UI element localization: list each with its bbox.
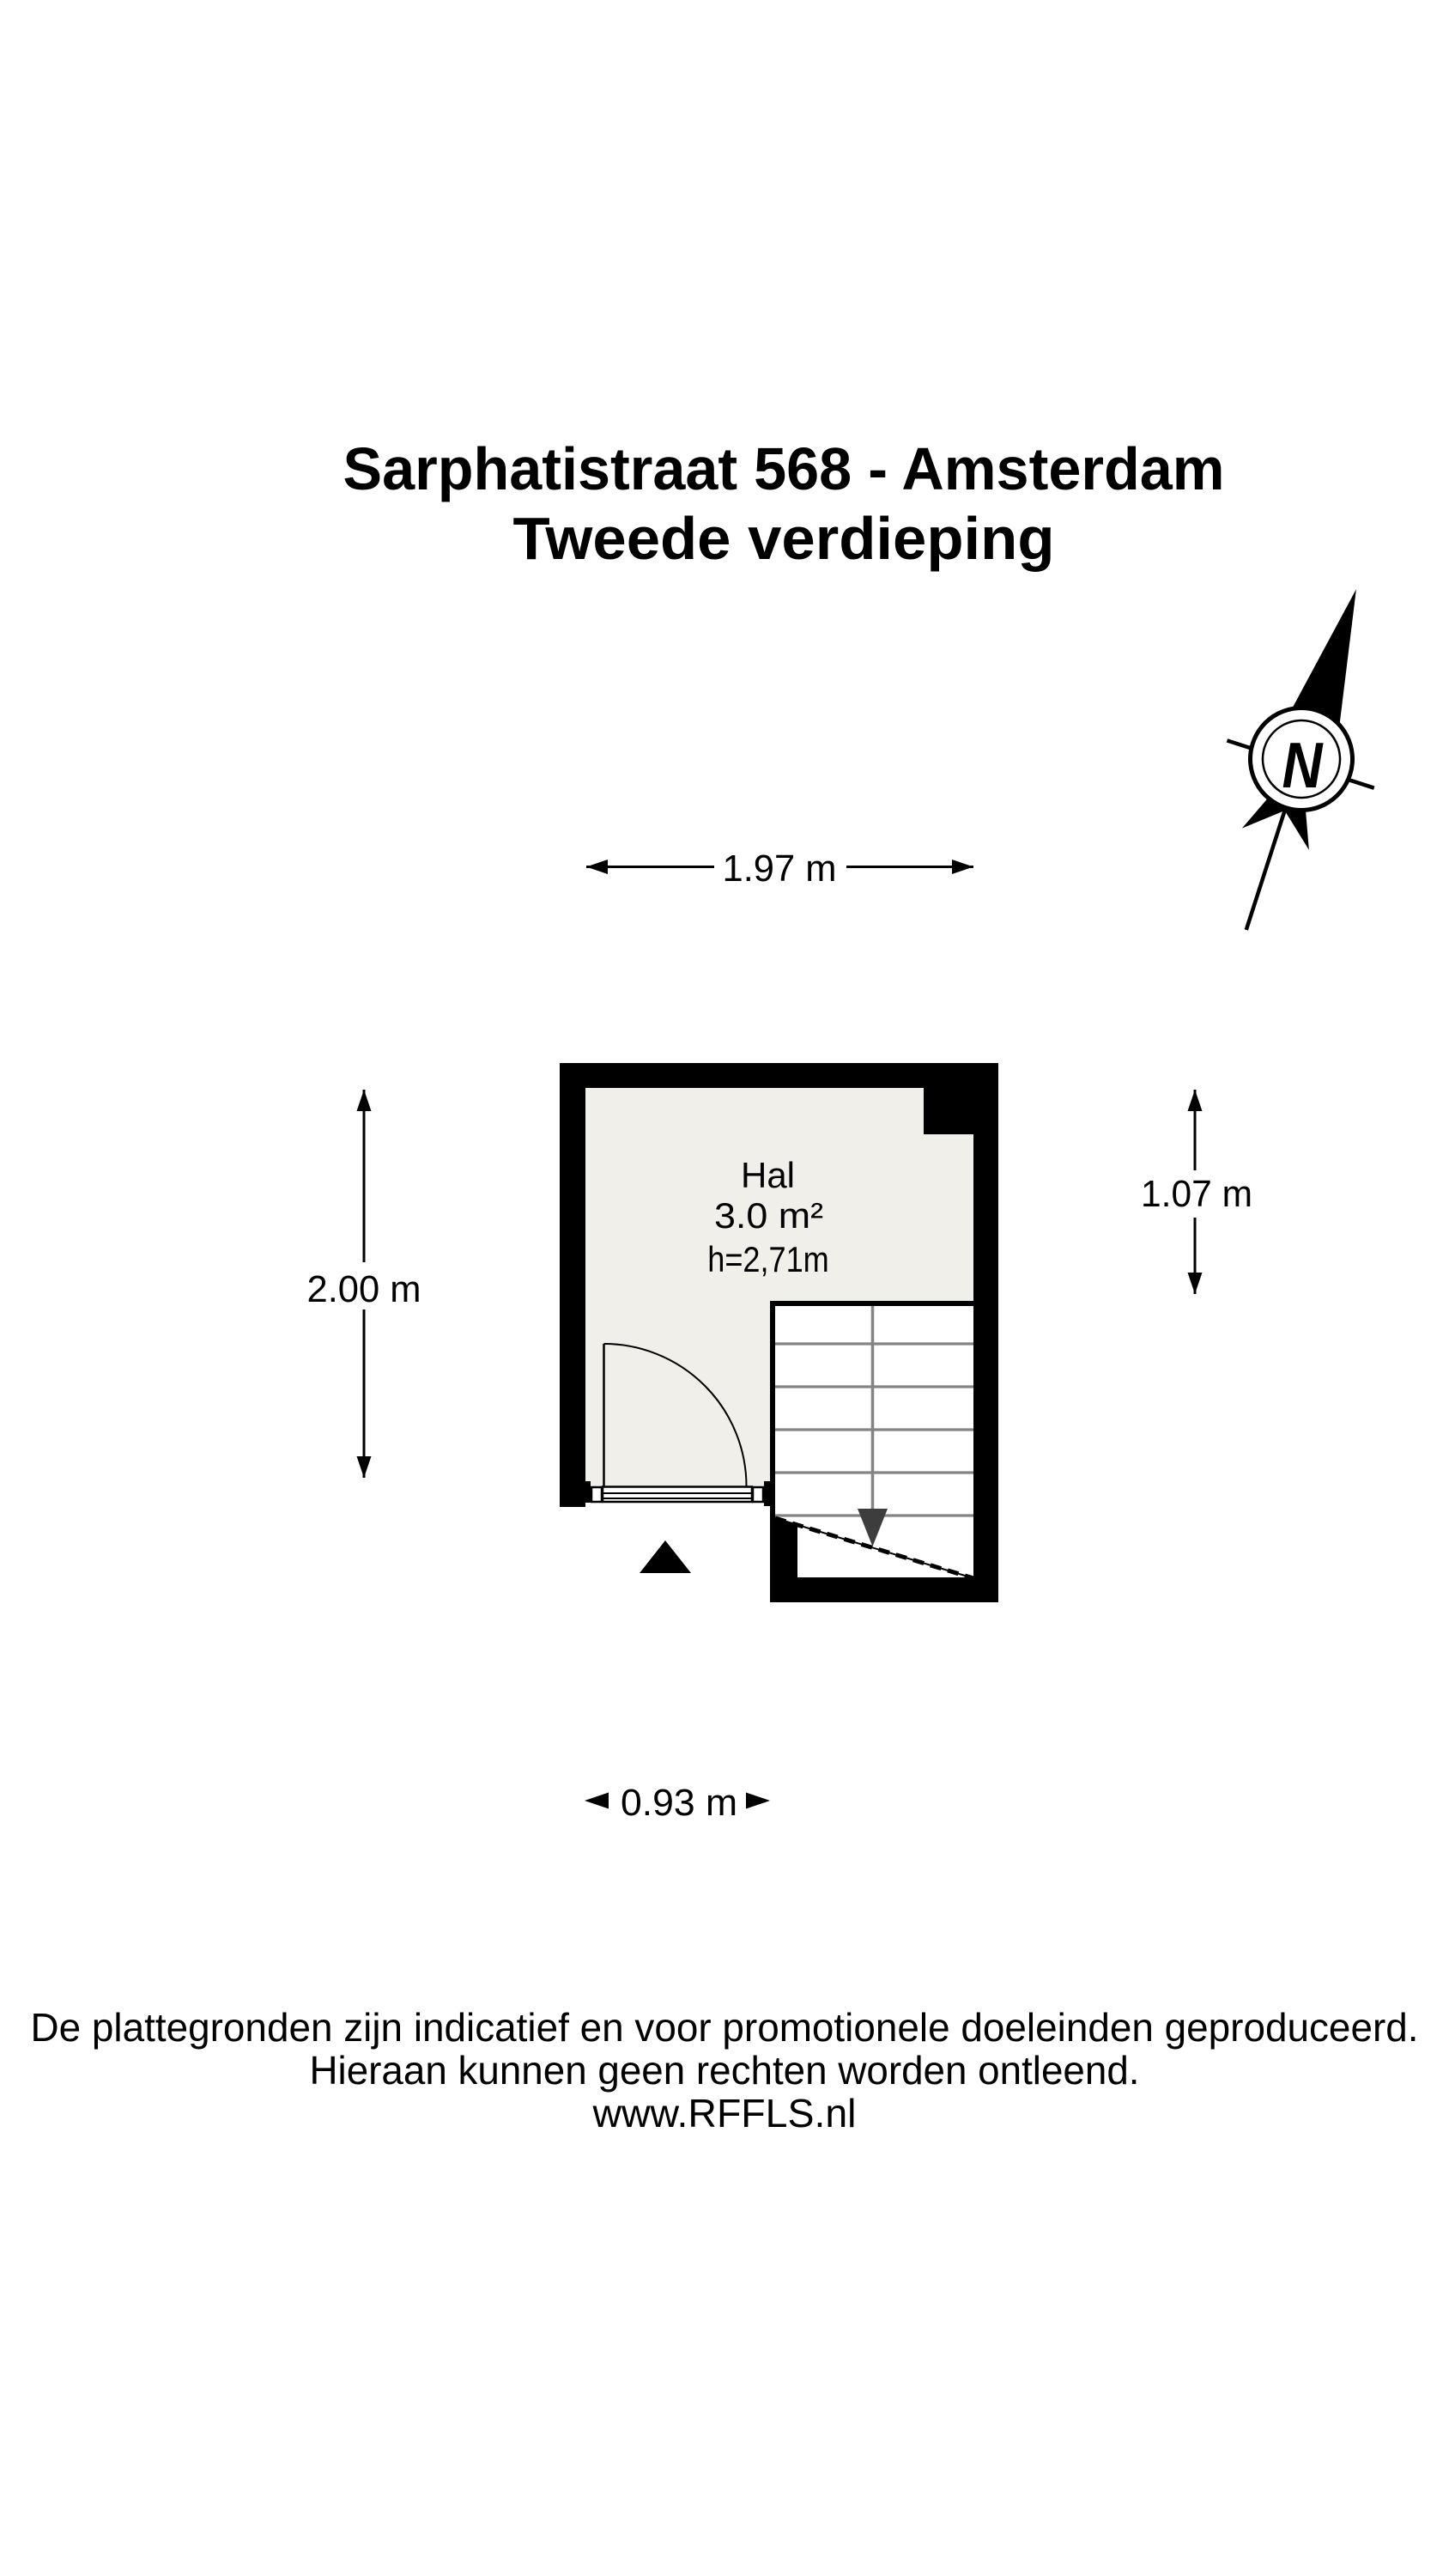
svg-text:Tweede verdieping: Tweede verdieping bbox=[513, 505, 1055, 572]
svg-text:N: N bbox=[1282, 729, 1325, 801]
svg-text:1.07 m: 1.07 m bbox=[1141, 1173, 1252, 1215]
svg-text:0.93 m: 0.93 m bbox=[621, 1782, 737, 1824]
svg-text:Hieraan kunnen geen rechten wo: Hieraan kunnen geen rechten worden ontle… bbox=[310, 2048, 1140, 2093]
svg-text:3.0 m²: 3.0 m² bbox=[714, 1195, 823, 1236]
svg-text:De plattegronden zijn indicati: De plattegronden zijn indicatief en voor… bbox=[31, 2005, 1419, 2050]
svg-text:h=2,71m: h=2,71m bbox=[707, 1241, 829, 1280]
svg-text:www.RFFLS.nl: www.RFFLS.nl bbox=[591, 2091, 856, 2136]
svg-text:Hal: Hal bbox=[741, 1155, 795, 1195]
svg-text:2.00 m: 2.00 m bbox=[307, 1268, 421, 1310]
svg-text:1.97 m: 1.97 m bbox=[723, 848, 837, 890]
svg-text:Sarphatistraat 568 - Amsterdam: Sarphatistraat 568 - Amsterdam bbox=[343, 435, 1225, 502]
